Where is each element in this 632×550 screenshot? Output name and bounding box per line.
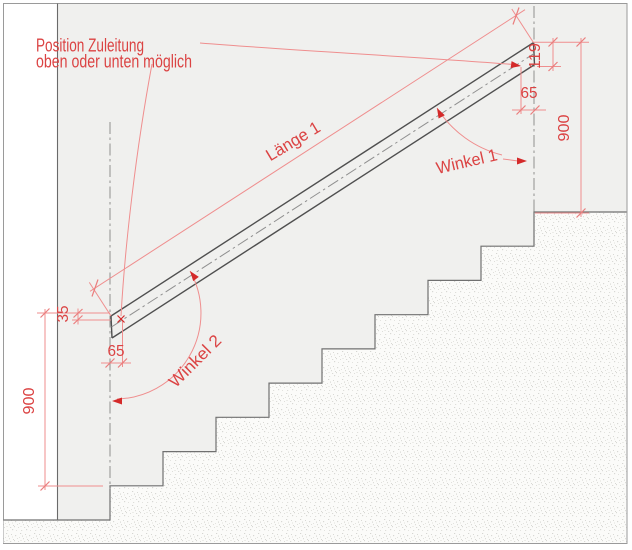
stair-handrail-drawing: Position Zuleitung oben oder unten mögli… — [0, 0, 632, 550]
wall-face — [4, 4, 58, 520]
dim-text-height-left: 900 — [21, 387, 38, 414]
dim-text-rail-top-offset: 35 — [55, 305, 72, 322]
dim-text-height-right: 900 — [556, 114, 573, 141]
dim-text-end-offset-top: 65 — [521, 85, 538, 102]
dim-text-rail-end-height: 119 — [527, 43, 544, 69]
technical-drawing-canvas: Position Zuleitung oben oder unten mögli… — [0, 0, 632, 550]
wall — [4, 4, 58, 521]
note-line2: oben oder unten möglich — [36, 52, 192, 72]
dim-text-end-offset-bottom: 65 — [108, 343, 125, 360]
